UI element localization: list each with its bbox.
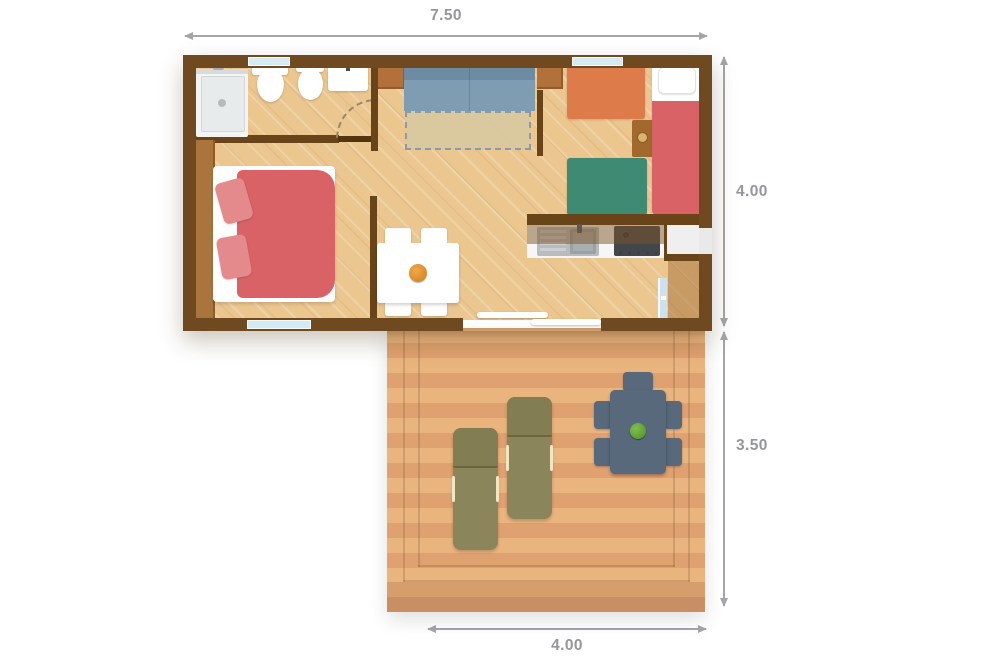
dimension-label-bottom: 4.00: [428, 637, 706, 655]
outdoor-chair: [623, 372, 653, 392]
fruit-bowl-icon: [409, 264, 427, 282]
sliding-door-panel: [477, 312, 548, 318]
deck-step-edge: [387, 597, 705, 612]
deck-border-line: [418, 328, 420, 567]
bed-blanket: [652, 101, 700, 215]
exterior-wall-bottom-left: [183, 318, 463, 331]
dining-chair: [421, 301, 447, 316]
bedroom-wall: [370, 196, 377, 320]
window: [247, 320, 311, 329]
sun-lounger: [453, 428, 498, 550]
terrace-deck: [387, 328, 705, 612]
window: [248, 57, 290, 66]
dining-table: [377, 243, 459, 303]
exterior-wall-right: [699, 55, 712, 331]
dimension-label-top: 7.50: [185, 7, 707, 25]
bathroom-partition-wall: [371, 66, 378, 151]
sofa-seat: [404, 80, 535, 111]
sliding-door-panel: [531, 319, 601, 325]
shower: [196, 69, 248, 137]
deck-border-line: [688, 328, 690, 582]
entrance-door: [658, 278, 667, 320]
lounger-headrest: [507, 397, 552, 437]
nightstand: [632, 120, 653, 157]
single-bed-green: [567, 158, 647, 215]
wall-opening: [699, 228, 712, 254]
deck-border-line: [403, 328, 405, 582]
single-bed-red: [652, 62, 700, 215]
outdoor-chair: [664, 438, 682, 466]
lamp-icon: [637, 132, 648, 143]
dimension-label-right-upper: 4.00: [736, 183, 778, 201]
dimension-arrow-bottom: [428, 628, 706, 630]
outdoor-chair: [664, 401, 682, 429]
floorplan-canvas: 7.50 4.00 3.50 4.00: [0, 0, 1000, 667]
dimension-label-right-lower: 3.50: [736, 437, 778, 455]
entrance-mat: [668, 261, 702, 321]
sofa-bed-extension: [405, 111, 531, 150]
potted-plant-icon: [630, 423, 646, 439]
bidet-bowl: [298, 68, 323, 100]
exterior-wall-bottom-right: [601, 318, 712, 331]
sun-lounger: [507, 397, 552, 519]
bed-duvet: [237, 170, 335, 298]
shower-drain-icon: [218, 99, 226, 107]
dimension-arrow-right-upper: [723, 57, 725, 326]
sofa-seam: [469, 66, 470, 111]
exterior-wall-left: [183, 55, 196, 331]
bed-pillow: [658, 67, 696, 94]
door-handle-icon: [661, 296, 666, 300]
single-bed-orange: [567, 62, 645, 119]
lounger-headrest: [453, 428, 498, 468]
kids-room-wall: [537, 90, 543, 156]
mobile-home-unit: [183, 55, 712, 331]
double-bed: [213, 166, 335, 302]
kitchen-wall: [527, 214, 712, 225]
cooktop-knobs: [616, 251, 660, 255]
dimension-arrow-right-lower: [723, 332, 725, 606]
deck-step-edge: [387, 582, 705, 597]
dimension-arrow-top: [185, 35, 707, 37]
deck-border-line: [418, 565, 675, 567]
window: [572, 57, 623, 66]
kitchen-overhead-cabinets: [527, 225, 667, 244]
dining-chair: [385, 301, 411, 316]
